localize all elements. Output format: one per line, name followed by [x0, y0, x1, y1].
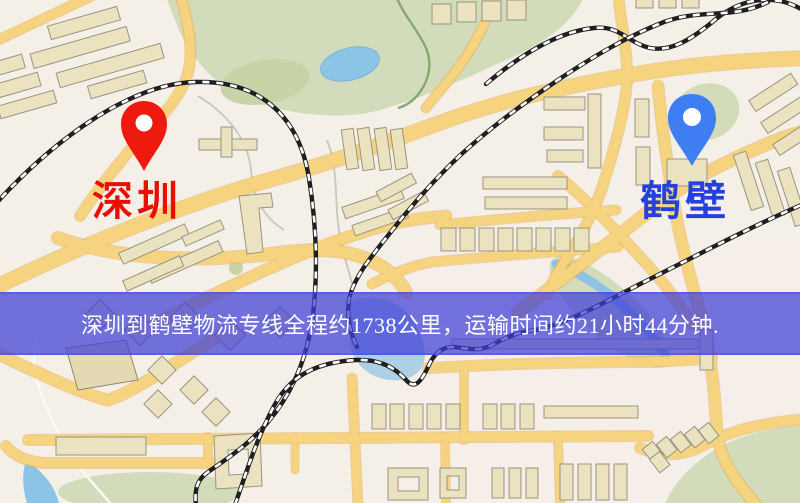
route-info-banner: 深圳到鹤壁物流专线全程约1738公里，运输时间约21小时44分钟. [0, 292, 800, 355]
destination-label: 鹤壁 [640, 181, 730, 222]
map-image [0, 0, 800, 503]
destination-pin-hole [683, 108, 701, 126]
map-container: 深圳到鹤壁物流专线全程约1738公里，运输时间约21小时44分钟. 深圳 鹤壁 [0, 0, 800, 503]
origin-label: 深圳 [92, 181, 182, 222]
route-info-text: 深圳到鹤壁物流专线全程约1738公里，运输时间约21小时44分钟. [81, 308, 719, 340]
origin-pin-hole [136, 115, 153, 132]
